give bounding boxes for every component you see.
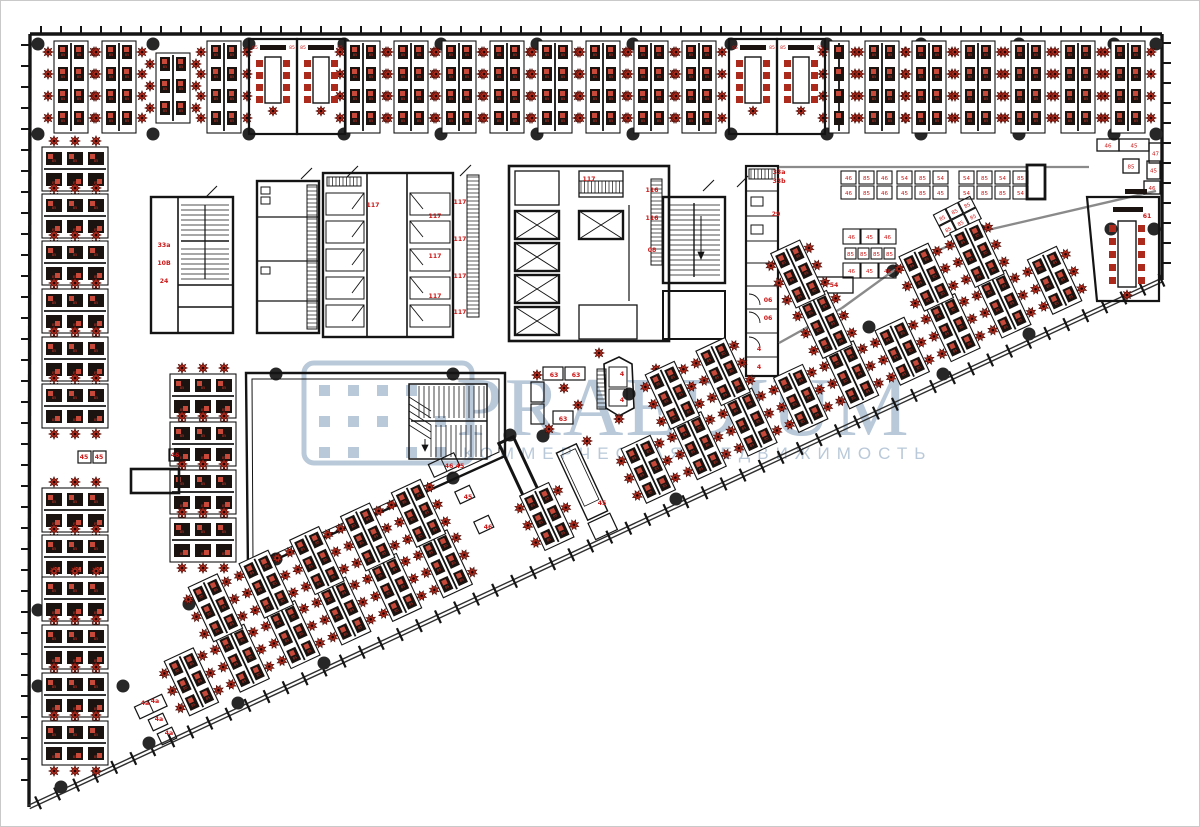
desk-cluster: 8585858585858585 [383,41,439,133]
svg-text:85: 85 [222,434,226,438]
svg-text:85: 85 [449,97,453,101]
svg-text:61: 61 [1143,213,1152,220]
svg-text:85: 85 [497,119,501,123]
svg-text:85: 85 [252,45,258,51]
svg-text:85: 85 [984,53,988,57]
lockers-strip [467,175,479,317]
wc-block-west [257,181,319,333]
svg-text:85: 85 [1034,75,1038,79]
svg-text:06: 06 [764,297,773,304]
svg-text:117: 117 [454,309,467,316]
desk-cluster: 8585858585858585 [623,41,679,133]
svg-text:85: 85 [1118,97,1122,101]
svg-text:85: 85 [94,685,98,689]
svg-text:46: 46 [845,191,852,197]
svg-text:54: 54 [963,176,970,182]
svg-text:85: 85 [1084,97,1088,101]
svg-text:85: 85 [369,53,373,57]
svg-text:85: 85 [1084,53,1088,57]
svg-text:46: 46 [848,269,855,275]
svg-text:85: 85 [73,301,77,305]
svg-text:4a: 4a [165,730,173,737]
svg-text:33a: 33a [158,242,171,249]
svg-text:85: 85 [689,119,693,123]
svg-text:24: 24 [160,278,169,285]
svg-text:4a: 4a [151,698,159,705]
svg-text:4: 4 [757,346,762,353]
svg-text:85: 85 [1134,75,1138,79]
svg-text:85: 85 [222,386,226,390]
svg-text:45: 45 [95,454,104,461]
svg-text:85: 85 [951,208,959,216]
svg-text:85: 85 [353,119,357,123]
svg-text:117: 117 [429,293,442,300]
svg-text:85: 85 [1134,119,1138,123]
svg-text:85: 85 [61,53,65,57]
svg-text:85: 85 [545,53,549,57]
svg-text:85: 85 [94,418,98,422]
svg-text:4: 4 [620,397,625,404]
svg-text:85: 85 [230,75,234,79]
svg-text:85: 85 [94,500,98,504]
svg-text:47: 47 [1152,152,1159,158]
desk-cluster: 858585858585 [155,644,228,721]
svg-text:85: 85 [641,75,645,79]
svg-text:85: 85 [179,109,183,113]
svg-text:85: 85 [888,97,892,101]
svg-text:85: 85 [935,97,939,101]
svg-text:29: 29 [772,211,781,218]
svg-text:46: 46 [881,176,888,182]
svg-text:85: 85 [561,97,565,101]
desk-cluster: 8585858585858585 [950,41,1006,133]
svg-text:06: 06 [764,315,773,322]
svg-text:85: 85 [689,75,693,79]
svg-text:63: 63 [550,372,559,379]
svg-text:85: 85 [1068,97,1072,101]
svg-text:85: 85 [369,97,373,101]
svg-text:85: 85 [860,252,867,258]
meeting-room: 8585 [729,39,777,134]
svg-text:45: 45 [598,500,607,507]
svg-text:85: 85 [52,589,56,593]
svg-text:85: 85 [73,396,77,400]
svg-text:4: 4 [620,371,625,378]
svg-text:85: 85 [125,53,129,57]
svg-text:33b: 33b [772,178,786,185]
svg-text:85: 85 [52,685,56,689]
desk-cluster: 858585858585 [1018,242,1091,319]
svg-text:85: 85 [689,97,693,101]
svg-text:85: 85 [94,396,98,400]
desk-cluster: 8585858585858585 [479,41,535,133]
svg-text:85: 85 [919,75,923,79]
svg-text:85: 85 [73,159,77,163]
svg-text:85: 85 [52,500,56,504]
svg-text:45: 45 [464,494,473,501]
svg-text:85: 85 [417,119,421,123]
svg-text:85: 85 [94,755,98,759]
wc-block-east [746,166,778,376]
svg-text:85: 85 [52,396,56,400]
svg-text:85: 85 [780,45,786,51]
meeting-room: 8585 [249,39,297,134]
svg-text:85: 85 [369,119,373,123]
svg-text:85: 85 [919,97,923,101]
svg-text:45: 45 [866,269,873,275]
svg-text:85: 85 [872,53,876,57]
desk-cluster: 8585858585858585 [901,41,957,133]
svg-text:85: 85 [873,252,880,258]
svg-text:85: 85 [77,75,81,79]
floor-plan-svg: PRAEDIUMКОММЕРЧЕСКАЯ НЕДВИЖИМОСТЬ8585858… [1,1,1199,826]
svg-text:85: 85 [1034,97,1038,101]
svg-text:85: 85 [214,119,218,123]
svg-text:117: 117 [583,176,596,183]
svg-text:85: 85 [94,589,98,593]
svg-text:85: 85 [180,386,184,390]
desk-cluster: 8585858585858585 [335,41,391,133]
svg-text:85: 85 [935,75,939,79]
svg-text:85: 85 [77,97,81,101]
svg-text:85: 85 [984,75,988,79]
svg-text:85: 85 [73,253,77,257]
svg-text:85: 85 [513,75,517,79]
svg-text:45: 45 [80,454,89,461]
stairwell-east [663,197,725,339]
svg-text:117: 117 [367,202,380,209]
svg-text:54: 54 [901,176,908,182]
svg-text:85: 85 [52,253,56,257]
svg-text:85: 85 [230,119,234,123]
svg-text:85: 85 [497,75,501,79]
svg-text:85: 85 [984,119,988,123]
svg-text:116: 116 [646,187,659,194]
svg-text:85: 85 [94,349,98,353]
svg-text:85: 85 [109,119,113,123]
svg-text:85: 85 [61,119,65,123]
svg-text:85: 85 [641,97,645,101]
svg-text:85: 85 [73,755,77,759]
svg-text:85: 85 [73,418,77,422]
svg-text:45: 45 [866,235,873,241]
svg-text:85: 85 [201,482,205,486]
svg-text:85: 85 [94,301,98,305]
svg-text:117: 117 [454,273,467,280]
svg-text:85: 85 [561,119,565,123]
svg-text:4a: 4a [155,716,163,723]
svg-text:85: 85 [497,97,501,101]
svg-text:117: 117 [429,213,442,220]
svg-text:85: 85 [963,202,971,210]
svg-text:85: 85 [886,252,893,258]
svg-text:85: 85 [981,176,988,182]
svg-text:85: 85 [641,53,645,57]
svg-text:45: 45 [1131,144,1138,150]
svg-text:85: 85 [938,215,946,223]
svg-text:85: 85 [1128,165,1135,171]
svg-text:85: 85 [94,253,98,257]
svg-text:54: 54 [937,176,944,182]
desk-cluster: 8585858585858585 [43,41,99,133]
desk-cluster: 8585858585858585 [1050,41,1106,133]
svg-text:85: 85 [300,45,306,51]
svg-text:85: 85 [465,75,469,79]
svg-text:85: 85 [94,733,98,737]
svg-text:85: 85 [180,552,184,556]
svg-text:85: 85 [353,97,357,101]
svg-text:85: 85 [1034,119,1038,123]
desk-cluster: 8585858585858585 [1100,41,1156,133]
svg-text:85: 85 [401,53,405,57]
svg-text:85: 85 [201,530,205,534]
svg-text:85: 85 [163,65,167,69]
svg-text:10B: 10B [157,260,171,267]
svg-text:46: 46 [881,191,888,197]
svg-text:33a: 33a [773,169,786,176]
svg-text:85: 85 [52,637,56,641]
svg-text:85: 85 [593,53,597,57]
floorplan-canvas: PRAEDIUMКОММЕРЧЕСКАЯ НЕДВИЖИМОСТЬ8585858… [0,0,1200,827]
svg-text:85: 85 [1118,53,1122,57]
svg-text:85: 85 [545,119,549,123]
desk-cluster: 8585858585858585 [1000,41,1056,133]
svg-text:85: 85 [52,418,56,422]
svg-text:85: 85 [968,75,972,79]
svg-text:85: 85 [201,386,205,390]
svg-text:85: 85 [94,159,98,163]
svg-text:85: 85 [465,97,469,101]
svg-text:85: 85 [77,53,81,57]
svg-text:85: 85 [1017,176,1024,182]
svg-text:4: 4 [757,364,762,371]
desk-cluster: 8585858585858585 [431,41,487,133]
svg-text:85: 85 [919,191,926,197]
svg-text:46: 46 [1105,144,1112,150]
svg-text:85: 85 [968,119,972,123]
svg-text:85: 85 [593,119,597,123]
svg-text:85: 85 [289,45,295,51]
svg-text:85: 85 [888,119,892,123]
svg-text:85: 85 [52,206,56,210]
svg-text:85: 85 [417,97,421,101]
svg-text:46: 46 [445,463,454,470]
svg-text:85: 85 [109,53,113,57]
svg-text:45: 45 [937,191,944,197]
svg-text:116: 116 [646,215,659,222]
svg-text:85: 85 [1134,53,1138,57]
svg-text:85: 85 [863,176,870,182]
svg-text:85: 85 [497,53,501,57]
meeting-room: 8585 [777,39,825,134]
svg-text:85: 85 [73,685,77,689]
svg-text:85: 85 [561,53,565,57]
svg-text:85: 85 [125,119,129,123]
svg-text:46: 46 [845,176,852,182]
svg-text:85: 85 [201,434,205,438]
svg-text:85: 85 [353,53,357,57]
svg-text:85: 85 [513,53,517,57]
svg-text:85: 85 [935,53,939,57]
svg-text:85: 85 [593,75,597,79]
svg-text:85: 85 [513,97,517,101]
svg-text:08: 08 [648,247,657,254]
svg-text:85: 85 [353,75,357,79]
svg-text:85: 85 [705,119,709,123]
svg-text:85: 85 [52,755,56,759]
svg-text:54: 54 [1017,191,1024,197]
svg-text:85: 85 [872,97,876,101]
desk-cluster: 8585858585858585 [91,41,147,133]
svg-text:85: 85 [52,733,56,737]
svg-text:85: 85 [1118,75,1122,79]
svg-text:85: 85 [94,637,98,641]
svg-text:85: 85 [109,97,113,101]
svg-text:85: 85 [1018,97,1022,101]
svg-text:63: 63 [572,372,581,379]
svg-text:85: 85 [52,301,56,305]
svg-text:85: 85 [1034,53,1038,57]
svg-text:85: 85 [1018,53,1022,57]
svg-text:85: 85 [657,119,661,123]
desk-cluster: 8585858585858585 [575,41,631,133]
desk-cluster: 8585858585858585 [671,41,727,133]
svg-text:85: 85 [109,75,113,79]
svg-text:85: 85 [561,75,565,79]
svg-text:85: 85 [449,75,453,79]
svg-text:85: 85 [417,75,421,79]
svg-text:46: 46 [884,269,891,275]
svg-text:85: 85 [1018,75,1022,79]
svg-text:85: 85 [872,75,876,79]
svg-text:85: 85 [919,119,923,123]
svg-text:85: 85 [641,119,645,123]
svg-text:85: 85 [52,547,56,551]
svg-text:85: 85 [657,53,661,57]
svg-text:45: 45 [901,191,908,197]
svg-text:85: 85 [732,45,738,51]
svg-text:85: 85 [222,530,226,534]
svg-text:85: 85 [214,75,218,79]
svg-text:85: 85 [52,349,56,353]
svg-text:85: 85 [94,547,98,551]
svg-text:117: 117 [429,253,442,260]
svg-text:85: 85 [935,119,939,123]
svg-text:117: 117 [454,199,467,206]
svg-text:85: 85 [77,119,81,123]
svg-text:85: 85 [222,552,226,556]
svg-text:85: 85 [657,97,661,101]
svg-text:54: 54 [830,282,839,289]
svg-text:85: 85 [163,109,167,113]
desk-cluster: 858585858585 [145,53,201,123]
svg-text:85: 85 [180,482,184,486]
svg-text:85: 85 [545,97,549,101]
svg-text:85: 85 [981,191,988,197]
svg-text:54: 54 [999,176,1006,182]
svg-text:85: 85 [337,45,343,51]
svg-text:85: 85 [61,97,65,101]
svg-text:85: 85 [919,53,923,57]
svg-text:85: 85 [369,75,373,79]
desk-cluster: 8585858585858585 [527,41,583,133]
svg-text:85: 85 [73,547,77,551]
svg-text:85: 85 [73,637,77,641]
svg-text:85: 85 [52,159,56,163]
svg-text:85: 85 [61,75,65,79]
svg-text:85: 85 [968,97,972,101]
svg-text:85: 85 [609,75,613,79]
svg-text:85: 85 [449,53,453,57]
svg-text:85: 85 [465,119,469,123]
svg-text:63: 63 [559,416,568,423]
svg-text:85: 85 [401,97,405,101]
svg-text:85: 85 [201,552,205,556]
left-tables [78,449,182,493]
svg-text:85: 85 [214,53,218,57]
svg-text:85: 85 [230,53,234,57]
svg-text:85: 85 [1134,97,1138,101]
svg-text:85: 85 [125,97,129,101]
svg-text:85: 85 [609,97,613,101]
svg-text:85: 85 [401,119,405,123]
svg-text:85: 85 [449,119,453,123]
svg-text:85: 85 [888,75,892,79]
svg-text:4a: 4a [141,700,149,707]
svg-text:85: 85 [593,97,597,101]
svg-text:85: 85 [657,75,661,79]
svg-text:117: 117 [454,236,467,243]
svg-text:85: 85 [863,191,870,197]
desk-cluster: 858585858585 [42,373,108,439]
svg-text:85: 85 [1084,119,1088,123]
svg-text:85: 85 [73,589,77,593]
svg-text:85: 85 [705,53,709,57]
svg-text:46: 46 [884,235,891,241]
svg-text:85: 85 [984,97,988,101]
svg-text:85: 85 [222,482,226,486]
svg-text:85: 85 [609,53,613,57]
svg-text:85: 85 [545,75,549,79]
svg-text:85: 85 [163,87,167,91]
svg-text:85: 85 [705,97,709,101]
svg-text:85: 85 [888,53,892,57]
svg-text:85: 85 [1118,119,1122,123]
svg-text:45: 45 [456,463,465,470]
svg-text:85: 85 [73,733,77,737]
svg-text:85: 85 [689,53,693,57]
svg-text:85: 85 [513,119,517,123]
svg-text:45: 45 [1150,169,1157,175]
svg-text:85: 85 [769,45,775,51]
svg-text:85: 85 [214,97,218,101]
svg-text:46: 46 [171,452,180,459]
svg-text:85: 85 [73,206,77,210]
svg-text:85: 85 [73,500,77,504]
diagonal-desk-field: 8585858585858585858585858585858585858585… [155,215,1091,720]
svg-text:85: 85 [125,75,129,79]
svg-text:85: 85 [1068,53,1072,57]
svg-text:85: 85 [1068,119,1072,123]
svg-text:85: 85 [872,119,876,123]
svg-text:85: 85 [847,252,854,258]
svg-text:85: 85 [179,87,183,91]
svg-text:85: 85 [1068,75,1072,79]
svg-text:46: 46 [848,235,855,241]
svg-text:85: 85 [817,45,823,51]
desk-cluster: 8585858585858585 [854,41,910,133]
svg-text:85: 85 [401,75,405,79]
